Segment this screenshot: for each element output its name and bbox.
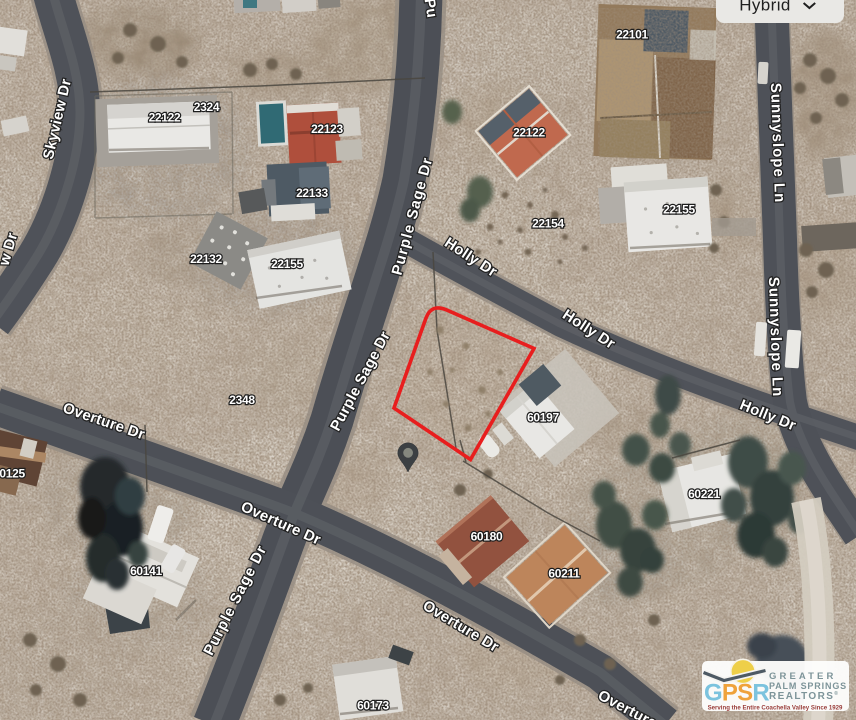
svg-text:60125: 60125 [0,467,26,481]
svg-text:22155: 22155 [663,203,695,217]
svg-text:Pu: Pu [421,0,441,19]
svg-text:22154: 22154 [532,217,564,231]
svg-text:22133: 22133 [296,186,328,200]
svg-text:22132: 22132 [190,252,222,266]
svg-text:22123: 22123 [311,122,343,136]
svg-text:60173: 60173 [357,699,389,713]
svg-text:60141: 60141 [130,564,162,578]
svg-text:60197: 60197 [527,411,559,425]
svg-text:22155: 22155 [271,257,303,271]
svg-text:2324: 2324 [194,100,220,114]
svg-text:22122: 22122 [149,111,181,125]
svg-text:22122: 22122 [513,126,545,140]
svg-text:Hybrid: Hybrid [739,0,791,15]
svg-text:Serving the Entire Coachella V: Serving the Entire Coachella Valley Sinc… [708,705,843,712]
svg-text:22101: 22101 [616,28,648,42]
svg-text:60211: 60211 [548,567,580,581]
svg-text:REALTORS®: REALTORS® [769,690,839,702]
svg-text:GPSR: GPSR [704,680,769,707]
svg-text:PALM SPRINGS: PALM SPRINGS [769,681,847,691]
svg-text:60221: 60221 [688,487,720,501]
svg-text:2348: 2348 [229,393,255,407]
svg-text:60180: 60180 [471,530,503,544]
